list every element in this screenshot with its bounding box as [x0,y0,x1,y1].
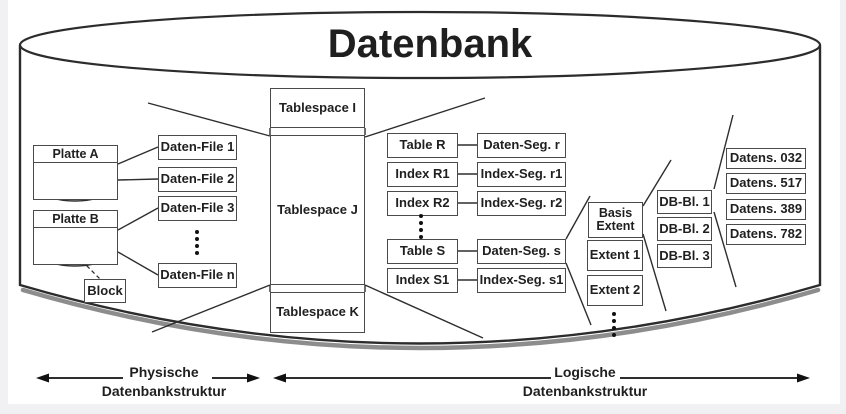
index-seg-r2: Index-Seg. r2 [477,191,566,216]
index-seg-s1: Index-Seg. s1 [477,268,566,293]
logical-structure-label-line1: Logische [554,364,615,380]
disk-platte-b-label: Platte B [34,211,117,228]
daten-file-3: Daten-File 3 [158,196,237,221]
index-s1: Index S1 [387,268,458,293]
logical-extent-arrow [273,374,810,383]
table-s: Table S [387,239,458,264]
extent-1: Extent 1 [587,240,643,271]
daten-seg-s: Daten-Seg. s [477,239,566,264]
ellipsis-icon [612,312,616,337]
index-r2: Index R2 [387,191,458,216]
datensatz-782: Datens. 782 [726,224,806,245]
daten-file-n: Daten-File n [158,263,237,288]
diagram-title: Datenbank [328,22,533,67]
daten-file-1: Daten-File 1 [158,135,237,160]
tablespace-j: Tablespace J [270,135,365,285]
db-block-1: DB-Bl. 1 [657,190,712,214]
tablespace-i: Tablespace I [270,88,365,128]
daten-seg-r: Daten-Seg. r [477,133,566,158]
datensatz-032: Datens. 032 [726,148,806,169]
table-r: Table R [387,133,458,158]
datensatz-389: Datens. 389 [726,199,806,220]
physical-structure-label-line2: Datenbankstruktur [102,383,226,399]
db-block-3: DB-Bl. 3 [657,244,712,268]
block-label: Block [84,279,126,303]
physical-structure-label-line1: Physische [129,364,198,380]
extent-2: Extent 2 [587,275,643,306]
disk-platte-b: Platte B [33,210,118,265]
daten-file-2: Daten-File 2 [158,167,237,192]
index-r1: Index R1 [387,162,458,187]
index-seg-r1: Index-Seg. r1 [477,162,566,187]
logical-structure-label-line2: Datenbankstruktur [523,383,647,399]
disk-platte-a-label: Platte A [34,146,117,163]
ellipsis-icon [419,214,423,239]
db-block-2: DB-Bl. 2 [657,217,712,241]
database-diagram: Datenbank Platte A Platte B Block Daten-… [0,0,846,414]
tablespace-k: Tablespace K [270,292,365,333]
datensatz-517: Datens. 517 [726,173,806,194]
ellipsis-icon [195,230,199,255]
disk-platte-a: Platte A [33,145,118,200]
basis-extent: Basis Extent [588,202,643,238]
